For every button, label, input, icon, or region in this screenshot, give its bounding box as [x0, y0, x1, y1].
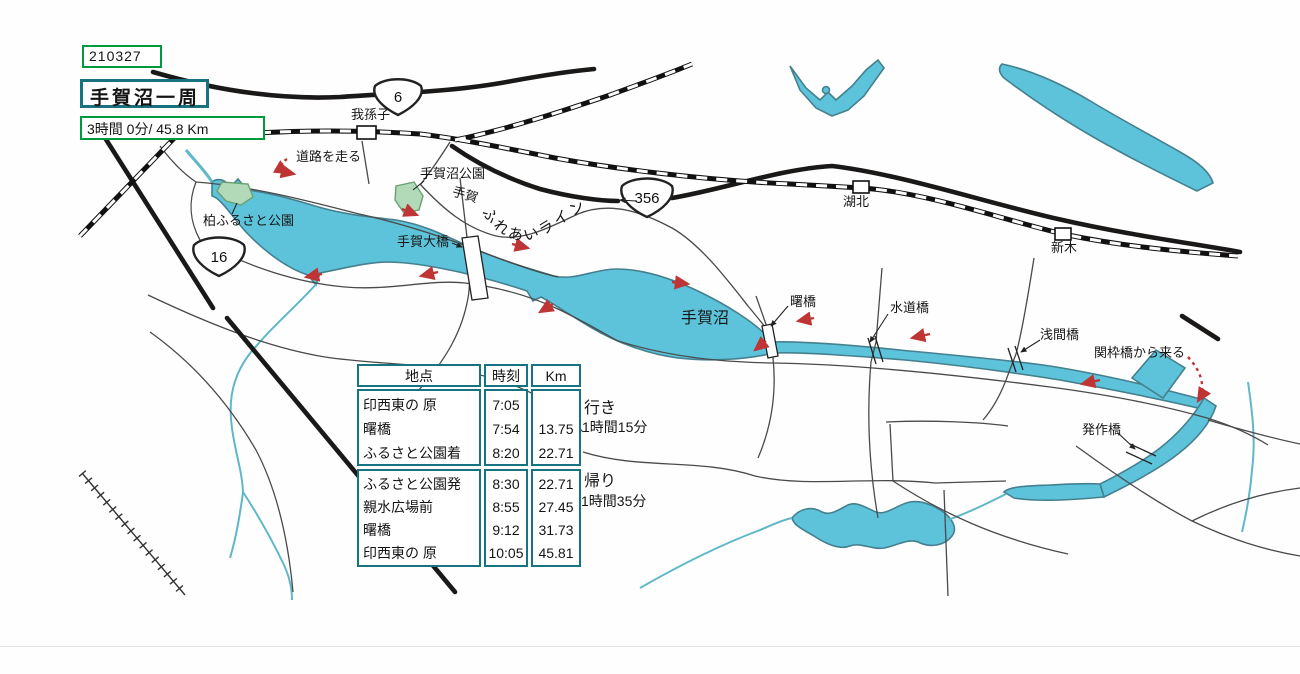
map-canvas: 6 356 16	[0, 0, 1300, 674]
summary-box: 3時間 0分/ 45.8 Km	[80, 116, 265, 140]
table-cell: 27.45	[533, 496, 579, 519]
table-cell: 22.71	[533, 473, 579, 496]
outbound-points-column: 印西東の 原 曙橋 ふるさと公園着	[357, 389, 481, 466]
route-356-number: 356	[634, 190, 659, 207]
table-cell: 10:05	[486, 542, 526, 565]
akebono-bridge-label: 曙橋	[790, 295, 816, 309]
fureai-line-curved-text: ふれあいライン	[478, 196, 590, 245]
date-box: 210327	[82, 45, 162, 68]
kohoku-station-marker	[853, 181, 869, 193]
scan-edge	[0, 646, 1300, 647]
return-times-column: 8:30 8:55 9:12 10:05	[484, 469, 528, 567]
table-header-km: Km	[531, 364, 581, 387]
kohoku-station-label: 湖北	[843, 195, 869, 209]
return-km-column: 22.71 27.45 31.73 45.81	[531, 469, 581, 567]
tega-ohashi-label: 手賀大橋	[397, 235, 449, 249]
river-ribbon-ne	[1000, 64, 1213, 191]
outbound-km-column: 13.75 22.71	[531, 389, 581, 466]
table-cell: 印西東の 原	[359, 393, 479, 417]
table-cell: 45.81	[533, 542, 579, 565]
table-cell: 曙橋	[359, 417, 479, 441]
table-cell: 8:30	[486, 473, 526, 496]
table-cell: 8:20	[486, 441, 526, 465]
return-points-column: ふるさと公園発 親水広場前 曙橋 印西東の 原	[357, 469, 481, 567]
table-cell: 曙橋	[359, 519, 479, 542]
outbound-times-column: 7:05 7:54 8:20	[484, 389, 528, 466]
table-cell: 親水広場前	[359, 496, 479, 519]
table-cell: 22.71	[533, 441, 579, 465]
table-cell: ふるさと公園発	[359, 473, 479, 496]
table-header-point: 地点	[357, 364, 481, 387]
pond-v-shape	[790, 60, 884, 116]
pond-dot	[823, 87, 830, 94]
return-label: 帰り	[584, 473, 616, 491]
wavy-pond	[792, 502, 954, 549]
sekiwaku-note-label: 関枠橋から来る	[1094, 346, 1185, 360]
abiko-station-marker	[357, 126, 376, 139]
table-cell: 7:54	[486, 417, 526, 441]
fureai-line-label: ふれあいライン	[478, 196, 590, 245]
teganuma-lake-label: 手賀沼	[681, 310, 729, 328]
hossaku-bridge-label: 発作橋	[1082, 423, 1121, 437]
hatched-railway	[82, 473, 185, 595]
route-6-number: 6	[394, 89, 402, 106]
road-note-label: 道路を走る	[296, 150, 361, 164]
table-cell: 印西東の 原	[359, 542, 479, 565]
route-16-number: 16	[211, 249, 228, 266]
outbound-label: 行き	[584, 400, 616, 418]
header-cell: Km	[533, 366, 579, 385]
teganuma-park-area	[395, 182, 423, 213]
return-time: 1時間35分	[581, 494, 646, 509]
hossaku-channel	[1100, 398, 1216, 497]
table-cell: ふるさと公園着	[359, 441, 479, 465]
header-cell: 時刻	[486, 366, 526, 385]
table-cell: 13.75	[533, 417, 579, 441]
header-cell: 地点	[359, 366, 479, 385]
table-cell: 31.73	[533, 519, 579, 542]
sengen-bridge-label: 浅間橋	[1040, 328, 1079, 342]
araki-station-label: 新木	[1051, 241, 1077, 255]
abiko-station-label: 我孫子	[351, 108, 390, 122]
table-cell: 7:05	[486, 393, 526, 417]
table-cell: 8:55	[486, 496, 526, 519]
pond-strip	[1004, 484, 1104, 501]
table-cell	[533, 393, 579, 417]
kashiwa-furusato-park-label: 柏ふるさと公園	[203, 214, 294, 228]
araki-station-marker	[1055, 228, 1071, 240]
page-title: 手賀沼一周	[80, 79, 209, 108]
table-cell: 9:12	[486, 519, 526, 542]
teganuma-park-label: 手賀沼公園	[420, 167, 485, 181]
suido-bridge-label: 水道橋	[890, 301, 929, 315]
sekiwaku-arrow	[1188, 357, 1202, 401]
table-header-time: 時刻	[484, 364, 528, 387]
outbound-time: 1時間15分	[582, 420, 647, 435]
